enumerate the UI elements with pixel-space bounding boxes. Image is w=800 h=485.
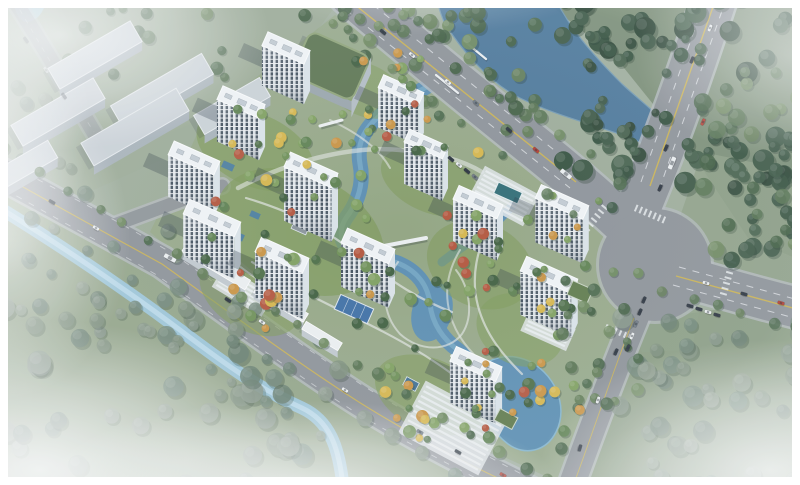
cool-tint bbox=[0, 0, 800, 485]
rendering-canvas bbox=[0, 0, 800, 485]
frame-edge bbox=[0, 0, 800, 8]
aerial-masterplan-rendering bbox=[0, 0, 800, 485]
frame-edge bbox=[0, 477, 800, 485]
atmosphere-fog bbox=[0, 0, 800, 485]
frame-edge bbox=[792, 0, 800, 485]
frame-edge bbox=[0, 0, 8, 485]
